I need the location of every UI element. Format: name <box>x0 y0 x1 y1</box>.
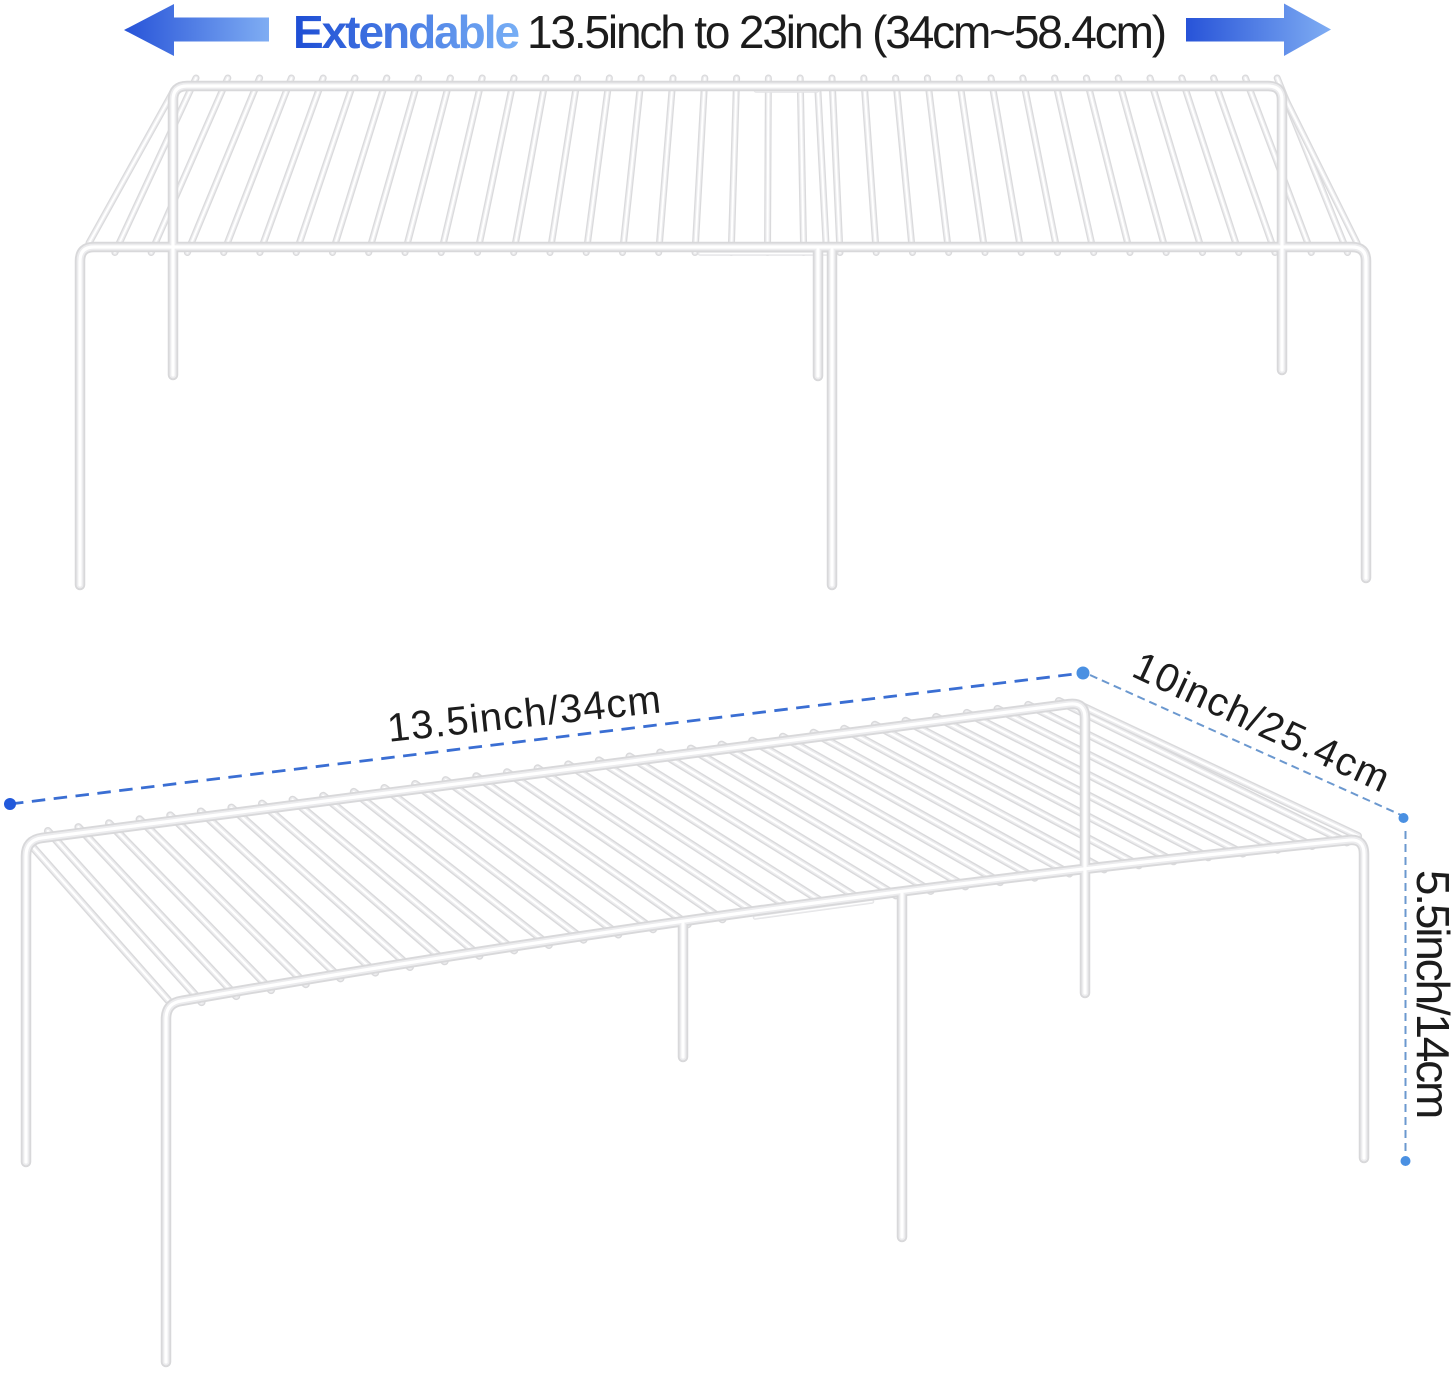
svg-text:13.5inch to 23inch (34cm~58.4c: 13.5inch to 23inch (34cm~58.4cm) <box>527 6 1165 58</box>
svg-text:5.5inch/14cm: 5.5inch/14cm <box>1407 870 1454 1117</box>
svg-text:Extendable: Extendable <box>293 6 519 58</box>
